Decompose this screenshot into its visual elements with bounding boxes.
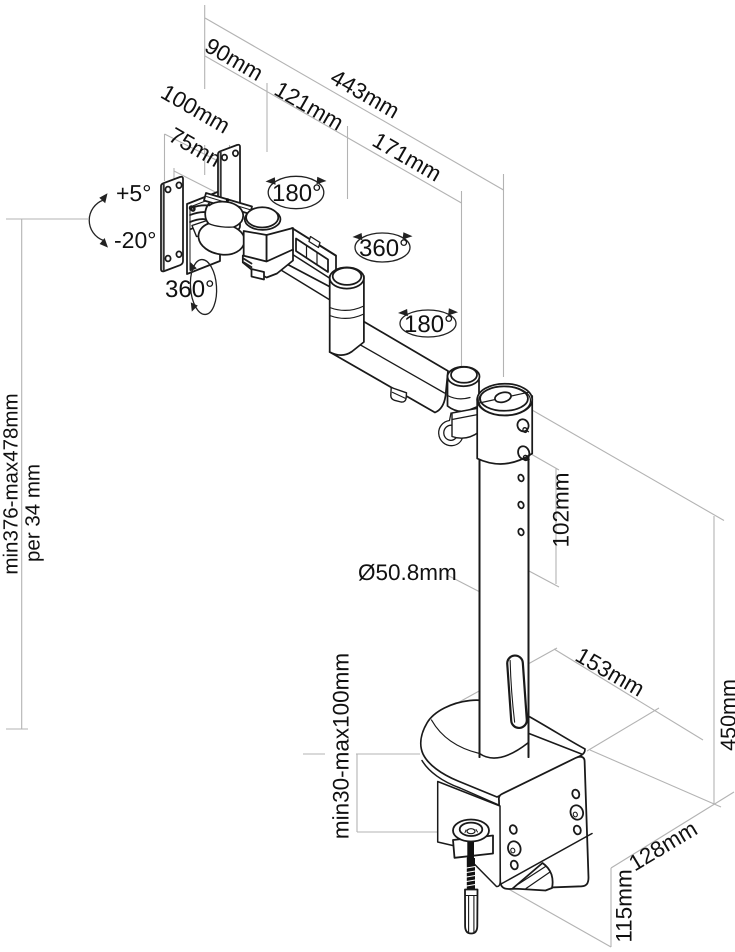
svg-text:450mm: 450mm xyxy=(717,679,735,751)
svg-text:115mm: 115mm xyxy=(612,869,637,942)
svg-text:min376-max478mm: min376-max478mm xyxy=(0,393,23,574)
svg-text:102mm: 102mm xyxy=(549,472,574,547)
svg-text:180°: 180° xyxy=(404,311,454,338)
svg-text:-20°: -20° xyxy=(114,227,156,253)
svg-text:+5°: +5° xyxy=(116,180,151,206)
svg-text:Ø50.8mm: Ø50.8mm xyxy=(358,560,457,585)
svg-text:min30-max100mm: min30-max100mm xyxy=(329,653,354,839)
svg-text:180°: 180° xyxy=(272,180,322,207)
svg-text:360°: 360° xyxy=(165,276,215,303)
svg-text:per 34 mm: per 34 mm xyxy=(22,464,45,562)
svg-text:360°: 360° xyxy=(359,235,409,262)
